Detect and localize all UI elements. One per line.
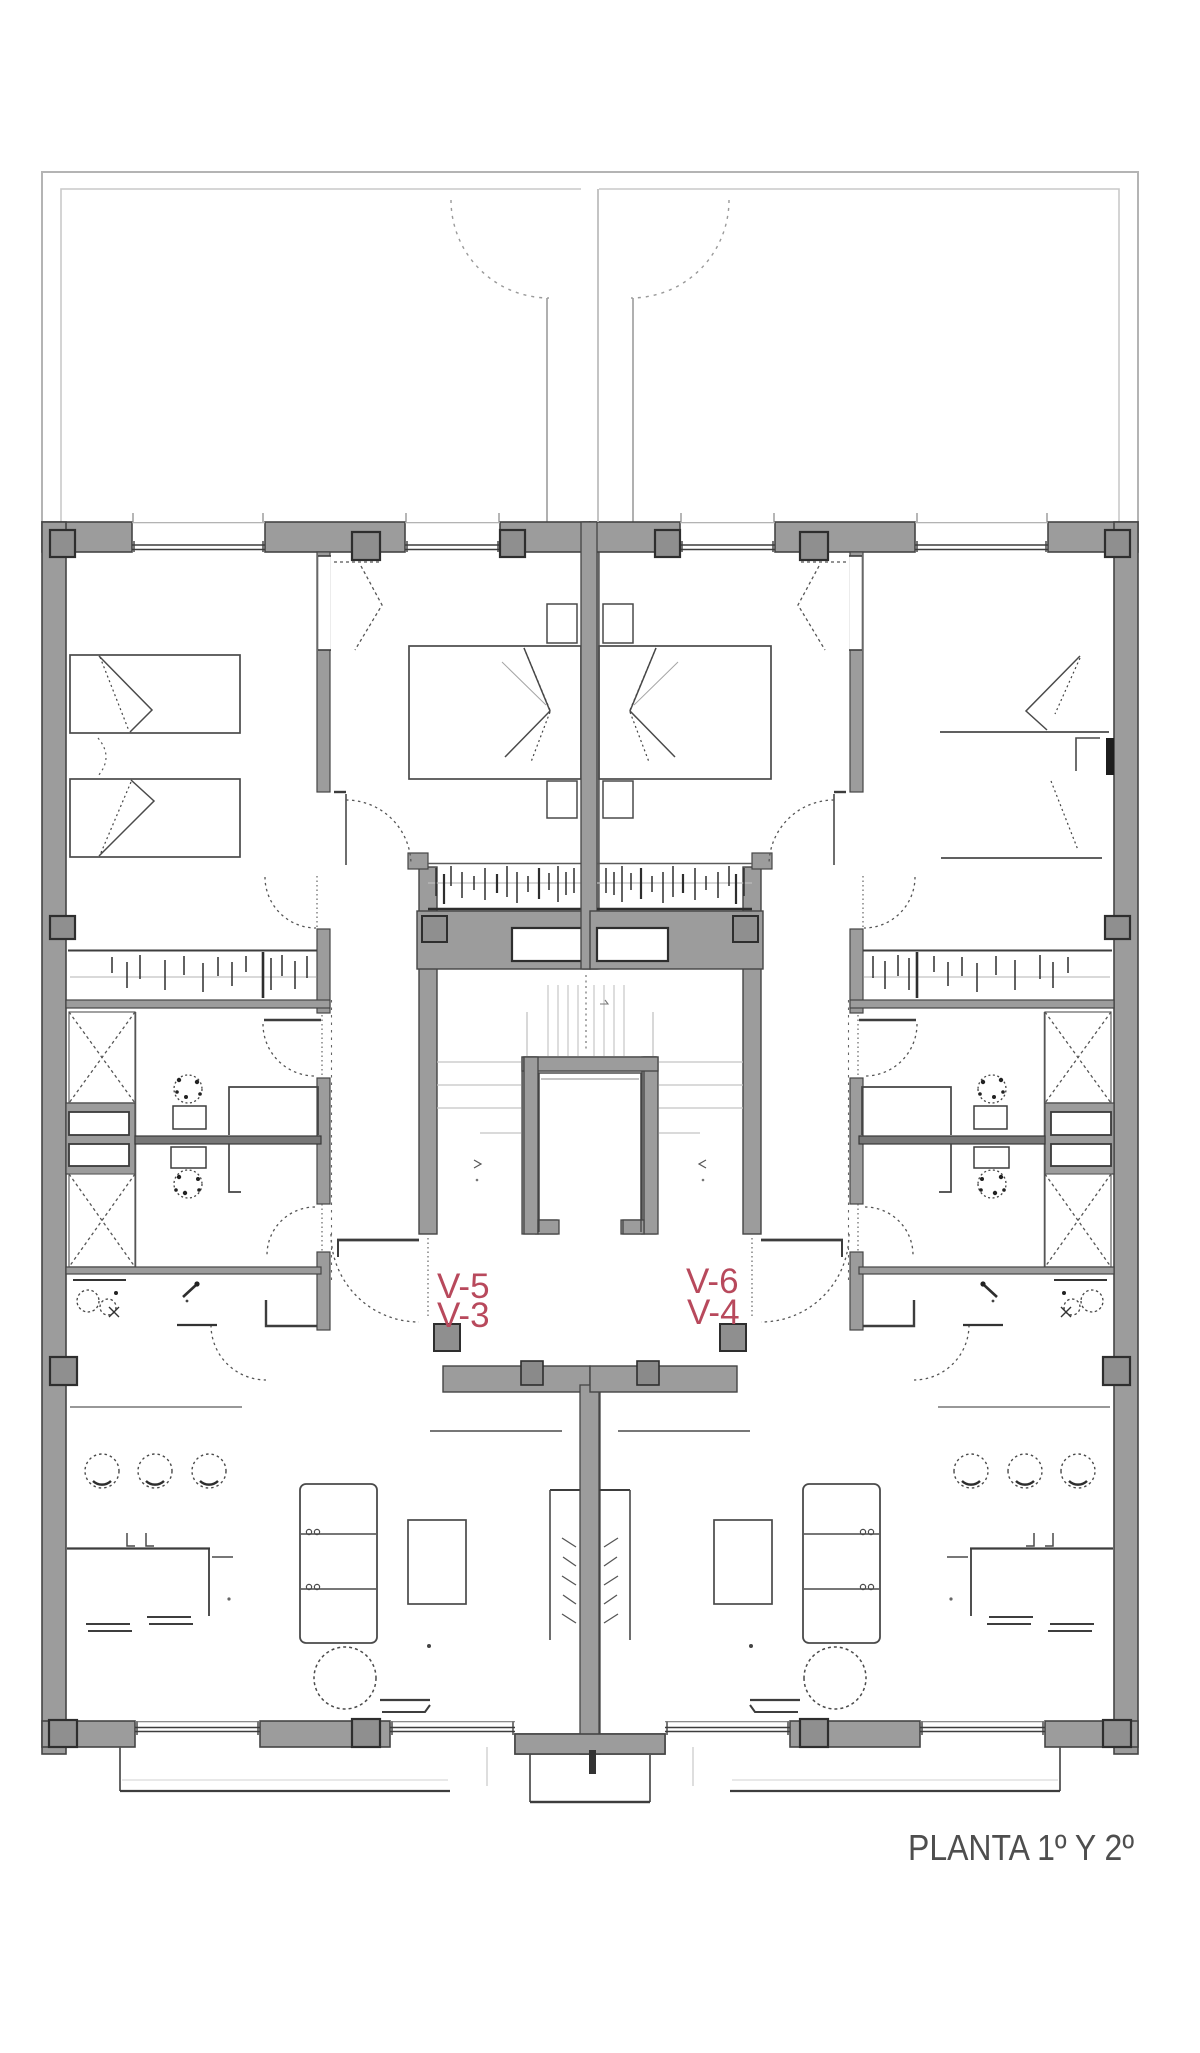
svg-text:V-4: V-4	[687, 1293, 740, 1332]
svg-text:PLANTA 1º Y 2º: PLANTA 1º Y 2º	[908, 1827, 1134, 1868]
svg-text:V-3: V-3	[437, 1296, 490, 1335]
